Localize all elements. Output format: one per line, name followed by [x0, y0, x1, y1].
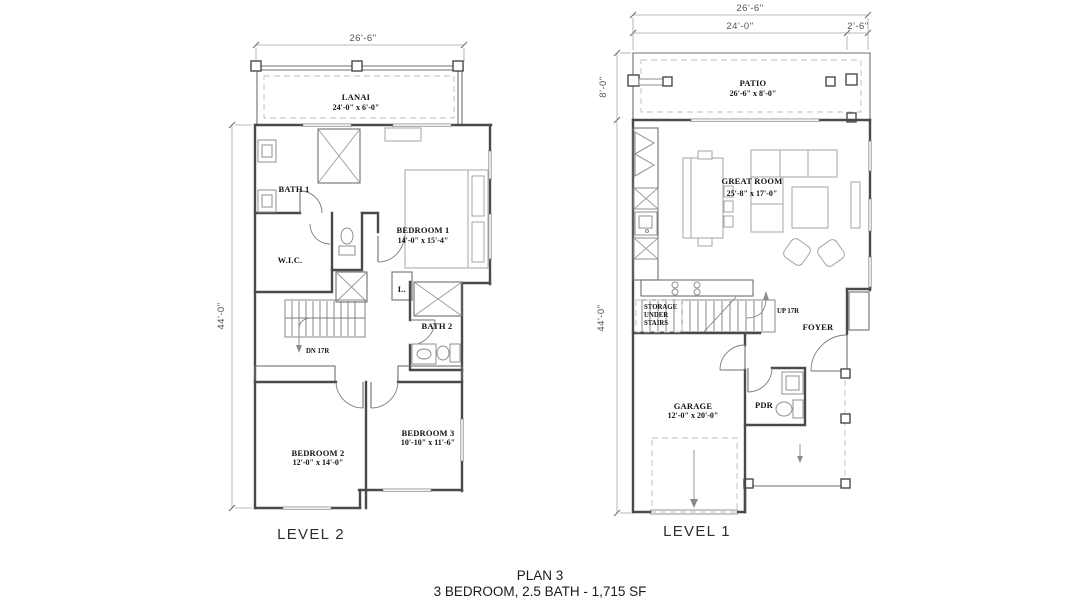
room-label-great-room: GREAT ROOM	[722, 176, 783, 186]
storage-label-line1: STORAGE	[644, 304, 678, 311]
pantry-shelves	[635, 132, 654, 176]
floor-plan-sheet: 26'-6" 44'-0" LANAI 24'-0" x 6'-0"	[0, 0, 1080, 608]
room-size-great-room: 25'-8" x 17'-0"	[727, 189, 778, 198]
room-size-patio: 26'-6" x 8'-0"	[730, 89, 777, 98]
dim-level1-width-main: 24'-0"	[726, 21, 753, 32]
dim-level1-width-side: 2'-6"	[847, 21, 868, 32]
bath2-toilet-fixture	[437, 344, 460, 362]
bedroom3-closet	[398, 366, 462, 382]
level1-stairs: UP 17R STORAGE UNDER STAIRS	[633, 291, 799, 334]
patio-post	[826, 77, 835, 86]
cooktop-burners	[672, 282, 700, 295]
coffee-table	[792, 187, 828, 228]
room-label-garage: GARAGE	[674, 401, 713, 411]
level2-lanai: LANAI 24'-0" x 6'-0"	[251, 61, 464, 124]
stairs-label-up: UP 17R	[777, 308, 799, 315]
bedroom3-door-arc	[371, 382, 398, 408]
front-door-arc	[811, 335, 847, 371]
room-label-foyer: FOYER	[803, 322, 834, 332]
range-appliance	[634, 238, 658, 259]
level1-great-room-furniture	[751, 150, 860, 268]
patio-post	[628, 75, 639, 86]
vanity-sink-fixture	[258, 140, 276, 212]
level1-powder-room	[745, 368, 805, 425]
lanai-post	[352, 61, 362, 71]
porch-post	[841, 369, 850, 378]
bath2-shower-fixture	[414, 282, 462, 316]
toilet-fixture	[339, 228, 355, 255]
caption-level1: LEVEL 1	[663, 523, 731, 540]
pdr-toilet-fixture	[776, 400, 803, 418]
storage-label-line3: STAIRS	[644, 320, 668, 327]
level1-patio: PATIO 26'-6" x 8'-0"	[628, 53, 870, 122]
room-size-bedroom1: 14'-0" x 15'-4"	[398, 236, 449, 245]
porch-post	[841, 479, 850, 488]
armchair	[816, 238, 847, 269]
footer-plan-subtitle: 3 BEDROOM, 2.5 BATH - 1,715 SF	[434, 584, 647, 599]
washer-dryer-box	[336, 272, 367, 302]
caption-level2: LEVEL 2	[277, 526, 345, 543]
room-label-linen: L.	[398, 284, 406, 294]
room-size-garage: 12'-0" x 20'-0"	[668, 411, 719, 420]
room-label-bedroom3: BEDROOM 3	[401, 428, 454, 438]
dim-level1-width-overall: 26'-6"	[736, 3, 763, 14]
room-size-bedroom3: 10'-10" x 11'-6"	[401, 438, 455, 447]
storage-label-line2: UNDER	[644, 312, 668, 319]
level1-kitchen	[633, 128, 753, 296]
level2-furniture	[385, 128, 488, 268]
kitchen-island	[683, 151, 733, 246]
room-label-pdr: PDR	[755, 400, 774, 410]
room-label-lanai: LANAI	[342, 92, 371, 102]
bedroom2-door-arc	[336, 382, 363, 408]
dim-level1-patio-depth: 8'-0"	[598, 76, 609, 97]
garage-entry-door-arc	[720, 345, 745, 370]
armchair	[782, 237, 813, 268]
room-label-wic: W.I.C.	[278, 255, 303, 265]
footer-plan-title: PLAN 3	[517, 568, 564, 583]
wc-door-arc	[310, 224, 330, 244]
dresser-furniture	[385, 128, 421, 141]
pdr-door-arc	[748, 368, 772, 392]
footer: PLAN 3 3 BEDROOM, 2.5 BATH - 1,715 SF	[434, 568, 647, 599]
level-2-plan: 26'-6" 44'-0" LANAI 24'-0" x 6'-0"	[216, 33, 491, 543]
room-size-lanai: 24'-0" x 6'-0"	[333, 103, 380, 112]
dim-level2-height: 44'-0"	[216, 302, 227, 329]
bed-furniture	[405, 170, 488, 268]
room-label-bedroom1: BEDROOM 1	[396, 225, 449, 235]
level2-stairs: DN 17R	[285, 300, 365, 355]
stairs-label-dn: DN 17R	[306, 348, 329, 355]
sink-fixture	[635, 212, 657, 235]
room-label-bath1: BATH 1	[278, 184, 309, 194]
bath2-vanity-fixture	[412, 344, 436, 364]
room-size-bedroom2: 12'-0" x 14'-0"	[293, 458, 344, 467]
floor-plan-canvas: 26'-6" 44'-0" LANAI 24'-0" x 6'-0"	[0, 0, 1080, 608]
level1-garage	[652, 333, 745, 512]
dim-level1-height: 44'-0"	[596, 304, 607, 331]
oven-appliance	[634, 188, 658, 209]
porch-post	[841, 414, 850, 423]
room-label-patio: PATIO	[740, 78, 767, 88]
tv-console	[851, 182, 860, 228]
patio-post	[846, 74, 857, 85]
patio-post	[663, 77, 672, 86]
foyer-closet	[849, 292, 869, 330]
lanai-post	[251, 61, 261, 71]
bath1-door-arc	[300, 191, 322, 213]
pdr-sink-fixture	[782, 372, 803, 394]
room-label-bedroom2: BEDROOM 2	[291, 448, 344, 458]
dim-level2-width: 26'-6"	[349, 33, 376, 44]
room-label-bath2: BATH 2	[421, 321, 452, 331]
level-1-plan: 26'-6" 24'-0" 2'-6" 8'-0" 44'-0"	[596, 3, 871, 540]
shower-fixture	[318, 129, 360, 183]
lanai-post	[453, 61, 463, 71]
bedroom2-closet	[255, 366, 335, 382]
